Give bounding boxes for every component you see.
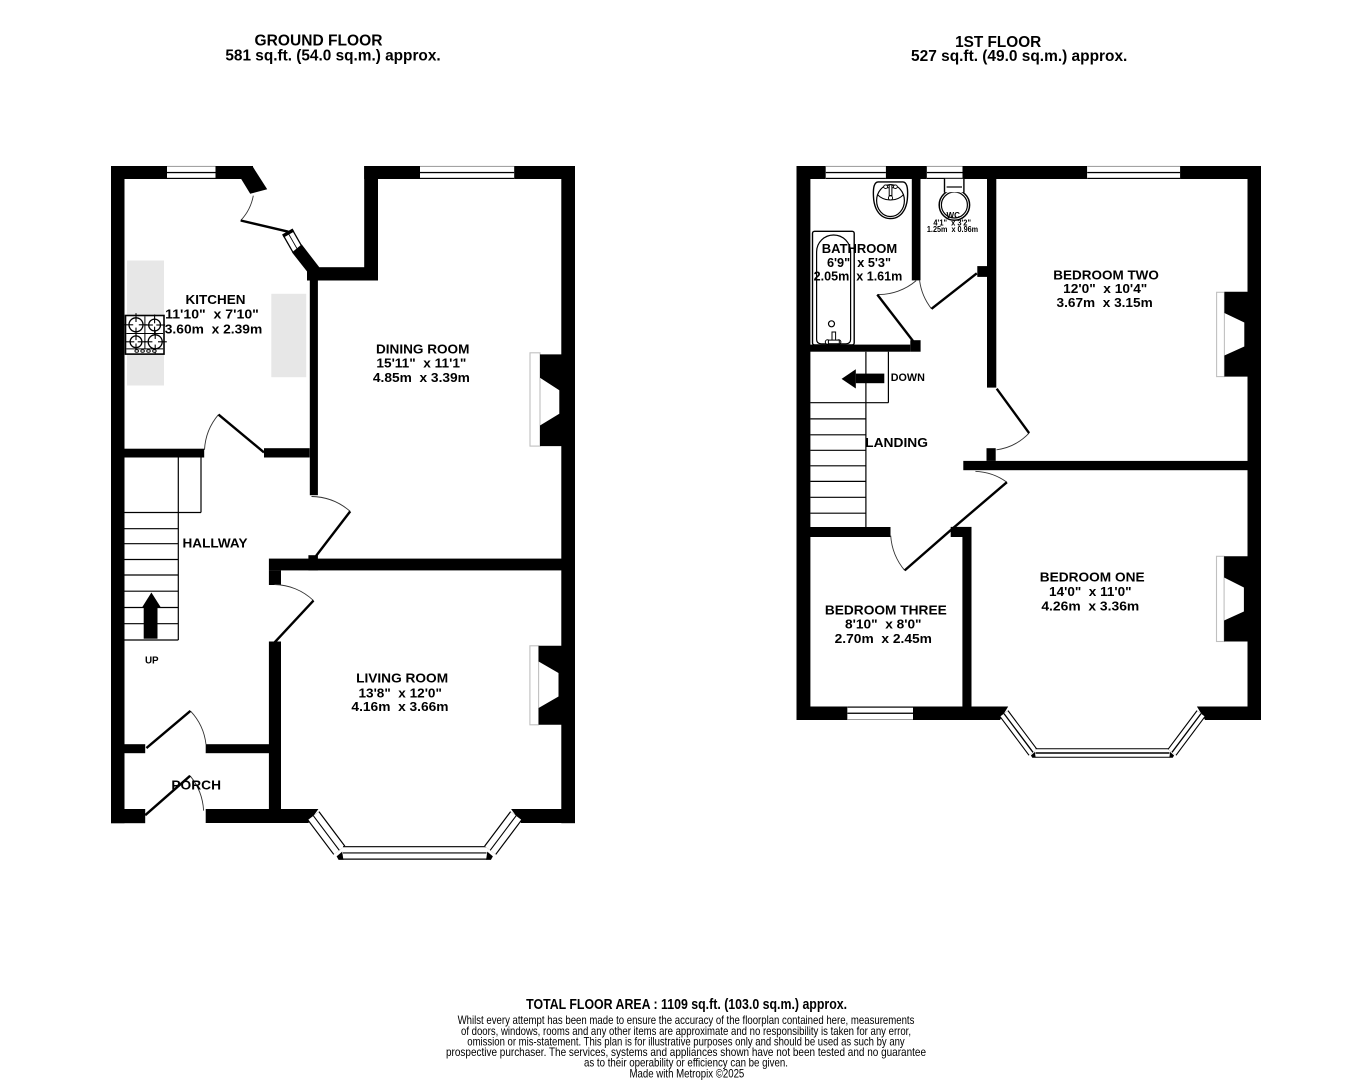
svg-text:4.26m x 3.36m: 4.26m x 3.36m xyxy=(1041,599,1139,614)
svg-text:Made with Metropix ©2025: Made with Metropix ©2025 xyxy=(630,1066,745,1080)
svg-text:15'11" x 11'1": 15'11" x 11'1" xyxy=(376,356,466,371)
svg-text:581 sq.ft. (54.0 sq.m.) approx: 581 sq.ft. (54.0 sq.m.) approx. xyxy=(225,47,440,64)
svg-text:6'9" x 5'3": 6'9" x 5'3" xyxy=(827,256,891,270)
svg-text:13'8" x 12'0": 13'8" x 12'0" xyxy=(359,685,442,700)
svg-text:KITCHEN: KITCHEN xyxy=(186,292,246,307)
svg-text:LIVING ROOM: LIVING ROOM xyxy=(356,670,448,685)
svg-text:8'10" x 8'0": 8'10" x 8'0" xyxy=(845,616,922,631)
svg-text:TOTAL FLOOR AREA : 1109 sq.ft.: TOTAL FLOOR AREA : 1109 sq.ft. (103.0 sq… xyxy=(526,997,847,1013)
svg-text:LANDING: LANDING xyxy=(865,435,928,450)
svg-text:PORCH: PORCH xyxy=(171,778,221,793)
svg-text:11'10" x 7'10": 11'10" x 7'10" xyxy=(165,306,259,321)
svg-text:527 sq.ft. (49.0 sq.m.) approx: 527 sq.ft. (49.0 sq.m.) approx. xyxy=(911,48,1127,65)
svg-text:BATHROOM: BATHROOM xyxy=(822,242,897,256)
svg-text:4.16m x 3.66m: 4.16m x 3.66m xyxy=(351,699,448,714)
svg-text:12'0" x 10'4": 12'0" x 10'4" xyxy=(1063,281,1147,296)
svg-text:DINING ROOM: DINING ROOM xyxy=(376,342,469,357)
svg-text:DOWN: DOWN xyxy=(891,372,925,384)
svg-text:4.85m x 3.39m: 4.85m x 3.39m xyxy=(373,370,470,385)
svg-text:3.67m x 3.15m: 3.67m x 3.15m xyxy=(1057,295,1153,310)
svg-text:BEDROOM THREE: BEDROOM THREE xyxy=(825,603,947,618)
svg-text:1.25m x 0.96m: 1.25m x 0.96m xyxy=(927,225,978,234)
svg-text:HALLWAY: HALLWAY xyxy=(183,535,248,550)
svg-text:2.05m x 1.61m: 2.05m x 1.61m xyxy=(814,269,903,283)
svg-text:14'0" x 11'0": 14'0" x 11'0" xyxy=(1049,584,1132,599)
svg-text:2.70m x 2.45m: 2.70m x 2.45m xyxy=(835,631,932,646)
svg-text:UP: UP xyxy=(145,655,159,666)
svg-text:BEDROOM ONE: BEDROOM ONE xyxy=(1040,570,1145,585)
svg-text:3.60m x 2.39m: 3.60m x 2.39m xyxy=(165,321,263,336)
